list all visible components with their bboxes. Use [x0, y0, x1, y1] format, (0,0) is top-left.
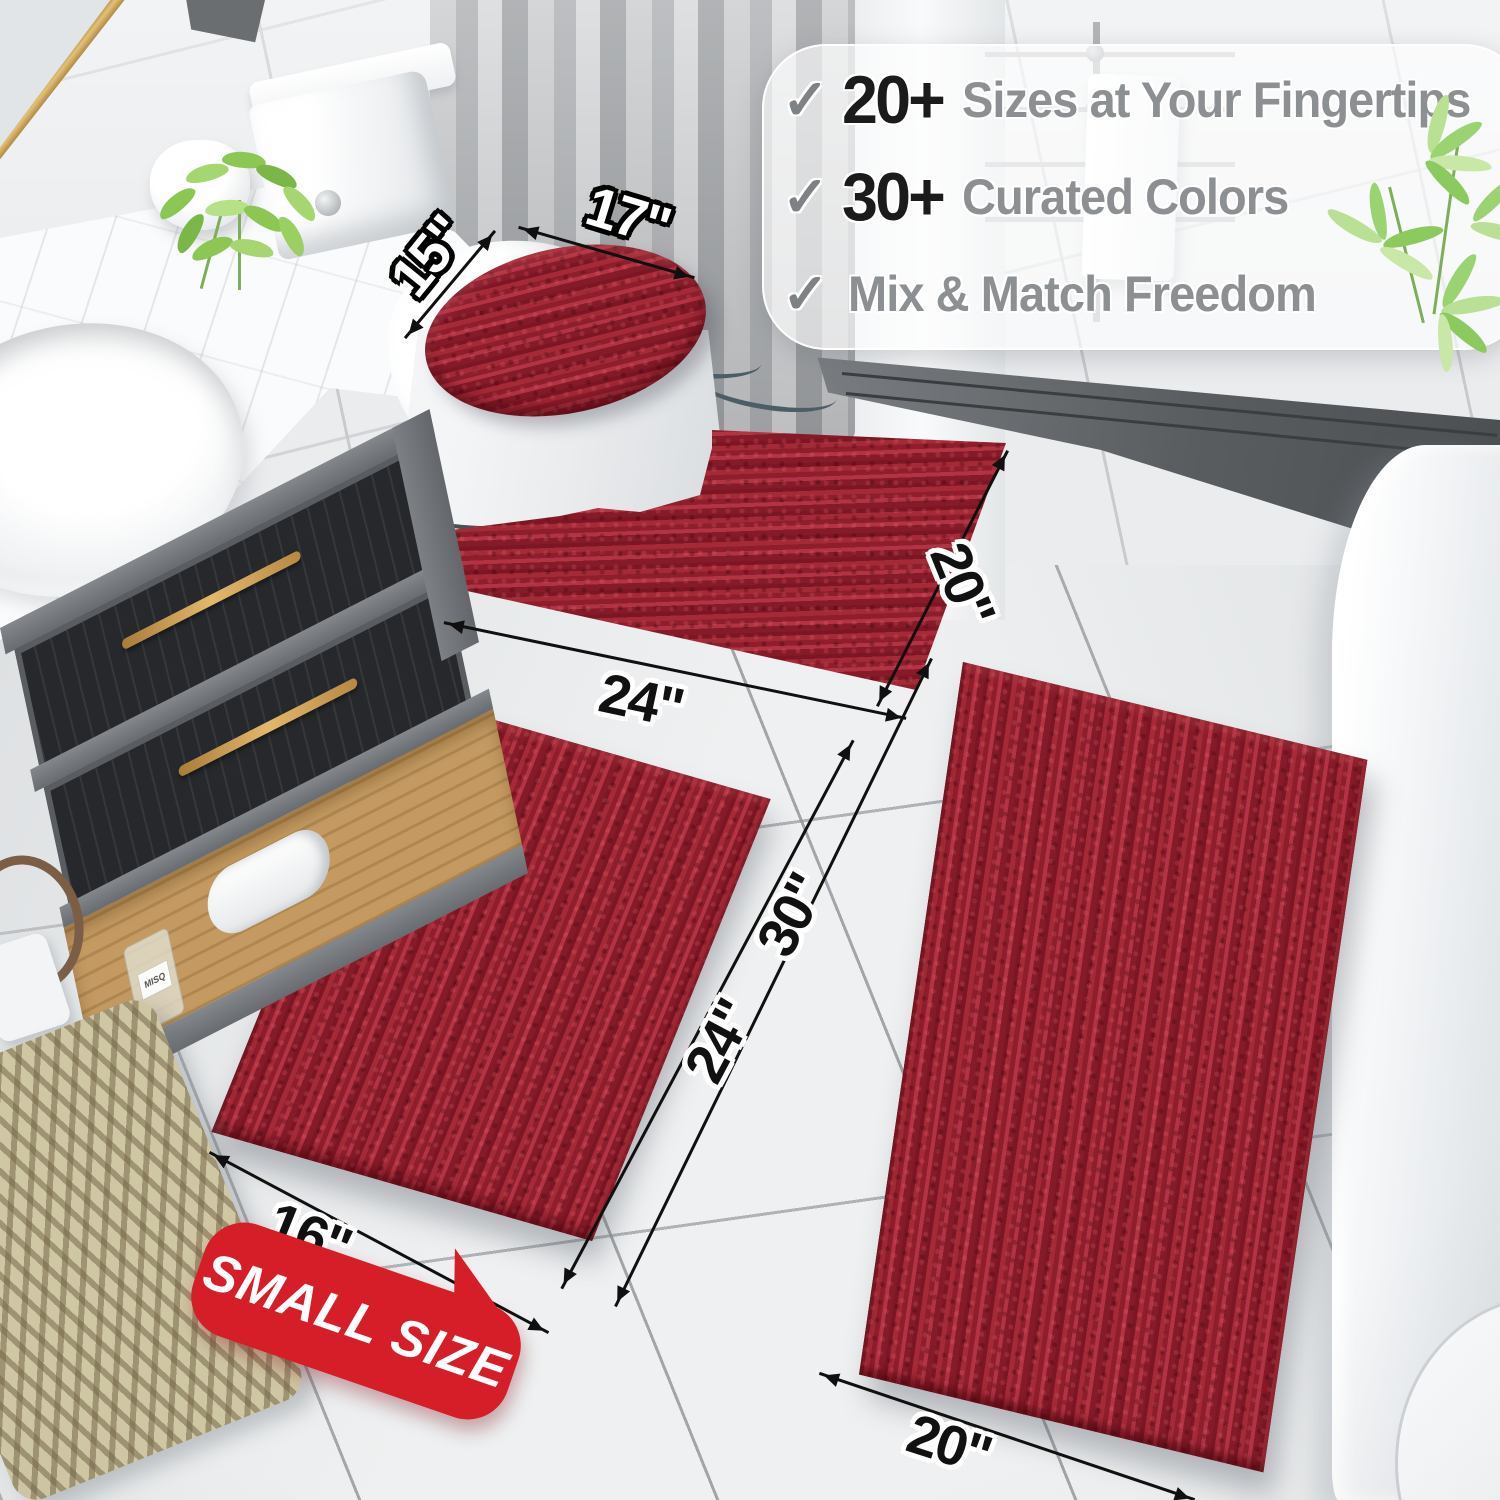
leaf: [229, 236, 275, 261]
checkmark-icon: ✓: [782, 164, 834, 230]
checkmark-icon: ✓: [782, 261, 834, 327]
feature-label: Mix & Match Freedom: [848, 265, 1316, 323]
bottle-label: MISQ: [137, 959, 173, 1001]
potted-plant: [150, 140, 330, 370]
leaf: [275, 213, 310, 259]
leaf: [1468, 174, 1500, 225]
checkmark-icon: ✓: [782, 67, 834, 133]
leaf: [1469, 217, 1500, 247]
feature-label: Curated Colors: [962, 168, 1288, 226]
wall-plant: [1325, 95, 1500, 365]
leaf: [1377, 241, 1436, 284]
bath-rug-product-image: MISQ 15" 17" 20" 24" 16" 24" 30" 20" SMA…: [0, 0, 1500, 1500]
feature-stat: 20+: [842, 61, 943, 139]
feature-stat: 30+: [842, 158, 943, 236]
